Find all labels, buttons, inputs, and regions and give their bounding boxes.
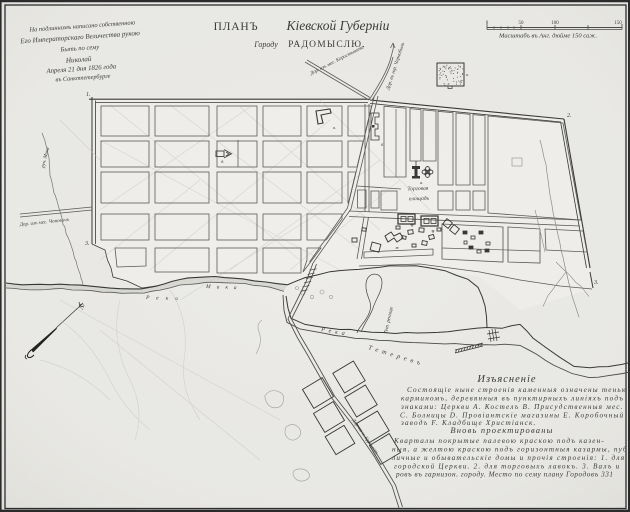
svg-text:a.: a. <box>420 180 423 185</box>
svg-text:д.: д. <box>221 159 224 164</box>
svg-text:б.: б. <box>381 142 384 147</box>
svg-text:в.: в. <box>333 125 336 130</box>
svg-text:s: s <box>440 226 442 231</box>
svg-text:площадь: площадь <box>409 195 430 203</box>
svg-text:личные и обывательскіе домы и: личные и обывательскіе домы и прочія стр… <box>391 454 625 462</box>
svg-text:50: 50 <box>519 21 525 26</box>
svg-text:Кварталы покрытые палевою крас: Кварталы покрытые палевою краскою подъ к… <box>393 437 605 445</box>
svg-text:Вновь проектированы: Вновь проектированы <box>450 425 553 435</box>
svg-text:ПЛАНЪ: ПЛАНЪ <box>214 21 259 33</box>
svg-text:РАДОМЫСЛЮ.: РАДОМЫСЛЮ. <box>288 40 366 50</box>
svg-text:ныя, а желтою краскою подъ гор: ныя, а желтою краскою подъ горизонтныя к… <box>392 446 630 454</box>
svg-text:150: 150 <box>614 21 622 26</box>
svg-text:Торговая: Торговая <box>407 186 429 193</box>
svg-text:3.: 3. <box>593 280 599 286</box>
svg-text:Изъясненіе: Изъясненіе <box>476 374 536 385</box>
svg-text:Масштабъ въ Анг. дюйме 150 саж: Масштабъ въ Анг. дюйме 150 саж. <box>498 33 597 40</box>
svg-text:к.: к. <box>466 72 469 77</box>
svg-text:Городу: Городу <box>253 40 278 49</box>
svg-text:3.: 3. <box>84 241 90 247</box>
svg-text:городской Церкви. 2. для торго: городской Церкви. 2. для торговыхъ лавок… <box>394 463 620 471</box>
svg-text:2.: 2. <box>567 113 572 119</box>
svg-text:1.: 1. <box>86 92 91 98</box>
svg-text:Кіевской Губерніи: Кіевской Губерніи <box>286 18 390 33</box>
svg-text:100: 100 <box>551 21 559 26</box>
svg-text:ровъ въ гарнизон. городу. Мест: ровъ въ гарнизон. городу. Место по сему … <box>395 471 614 479</box>
svg-text:карминомъ, деревянныя въ пункт: карминомъ, деревянныя въ пунктирныхъ лин… <box>401 395 624 403</box>
svg-text:знаками: Церкви А. Костелъ В.: знаками: Церкви А. Костелъ В. Присудстве… <box>400 403 624 411</box>
svg-text:Состоящіе ныне строенія каменн: Состоящіе ныне строенія каменныя означен… <box>407 386 628 394</box>
